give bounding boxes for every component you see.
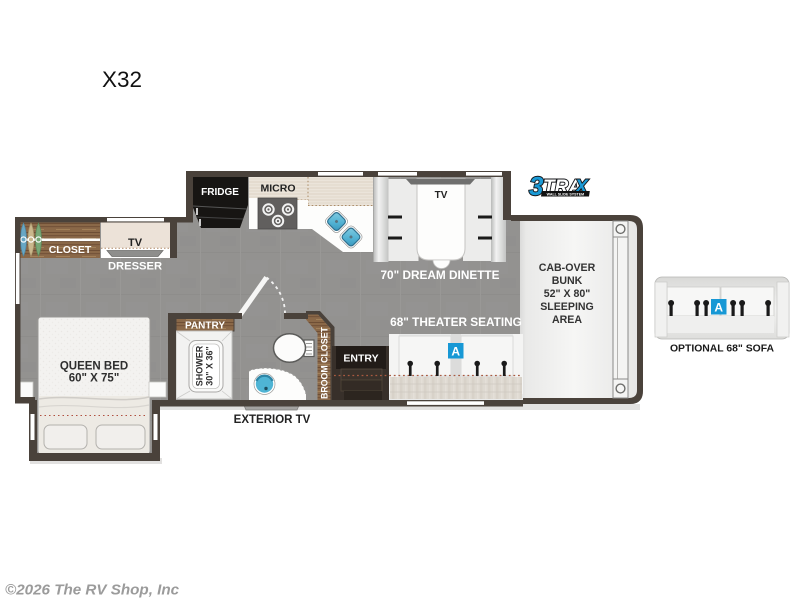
svg-text:PANTRY: PANTRY — [185, 321, 225, 332]
svg-text:TV: TV — [128, 237, 143, 249]
svg-text:AREA: AREA — [552, 314, 582, 326]
svg-text:30" X 36": 30" X 36" — [205, 346, 215, 386]
svg-text:OPTIONAL 68" SOFA: OPTIONAL 68" SOFA — [670, 344, 775, 355]
svg-text:©2026 The RV Shop, Inc: ©2026 The RV Shop, Inc — [5, 582, 180, 599]
svg-text:TV: TV — [435, 190, 448, 201]
svg-text:SHOWER: SHOWER — [195, 345, 205, 386]
svg-text:CLOSET: CLOSET — [49, 244, 92, 256]
svg-text:DRESSER: DRESSER — [108, 261, 162, 273]
svg-text:ENTRY: ENTRY — [343, 353, 378, 365]
svg-text:BUNK: BUNK — [552, 275, 583, 287]
svg-text:X32: X32 — [102, 67, 142, 92]
svg-text:QUEEN BED: QUEEN BED — [60, 361, 128, 373]
svg-text:FRIDGE: FRIDGE — [201, 187, 239, 198]
svg-text:MICRO: MICRO — [261, 183, 296, 195]
svg-text:68" THEATER SEATING: 68" THEATER SEATING — [390, 315, 522, 329]
svg-text:70" DREAM DINETTE: 70" DREAM DINETTE — [381, 268, 500, 282]
svg-text:BROOM CLOSET: BROOM CLOSET — [320, 327, 330, 399]
svg-text:WALL SLIDE SYSTEM: WALL SLIDE SYSTEM — [547, 193, 584, 197]
svg-text:52" X 80": 52" X 80" — [544, 288, 591, 300]
svg-text:SLEEPING: SLEEPING — [540, 301, 594, 313]
svg-text:60" X 75": 60" X 75" — [69, 373, 120, 385]
svg-text:A: A — [451, 345, 460, 359]
svg-text:CAB-OVER: CAB-OVER — [539, 262, 596, 274]
svg-text:A: A — [714, 301, 723, 315]
svg-text:EXTERIOR TV: EXTERIOR TV — [234, 414, 311, 426]
